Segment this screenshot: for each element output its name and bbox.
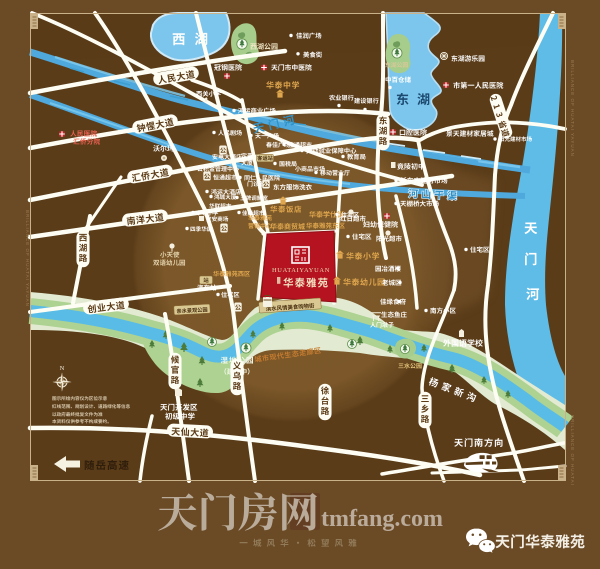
svg-text:HUATAIYAYUAN: HUATAIYAYUAN (272, 267, 330, 274)
svg-text:BRILLIANCE OF HUATAI: BRILLIANCE OF HUATAI (570, 415, 575, 486)
svg-text:BRILLIANCE OF HUATAI YAYUAN: BRILLIANCE OF HUATAI YAYUAN (25, 210, 30, 307)
svg-text:N: N (60, 365, 65, 372)
svg-text:tmfang.com: tmfang.com (321, 506, 443, 532)
svg-text:BRILLIANCE OF HUATAI YAYUAN: BRILLIANCE OF HUATAI YAYUAN (570, 60, 575, 157)
